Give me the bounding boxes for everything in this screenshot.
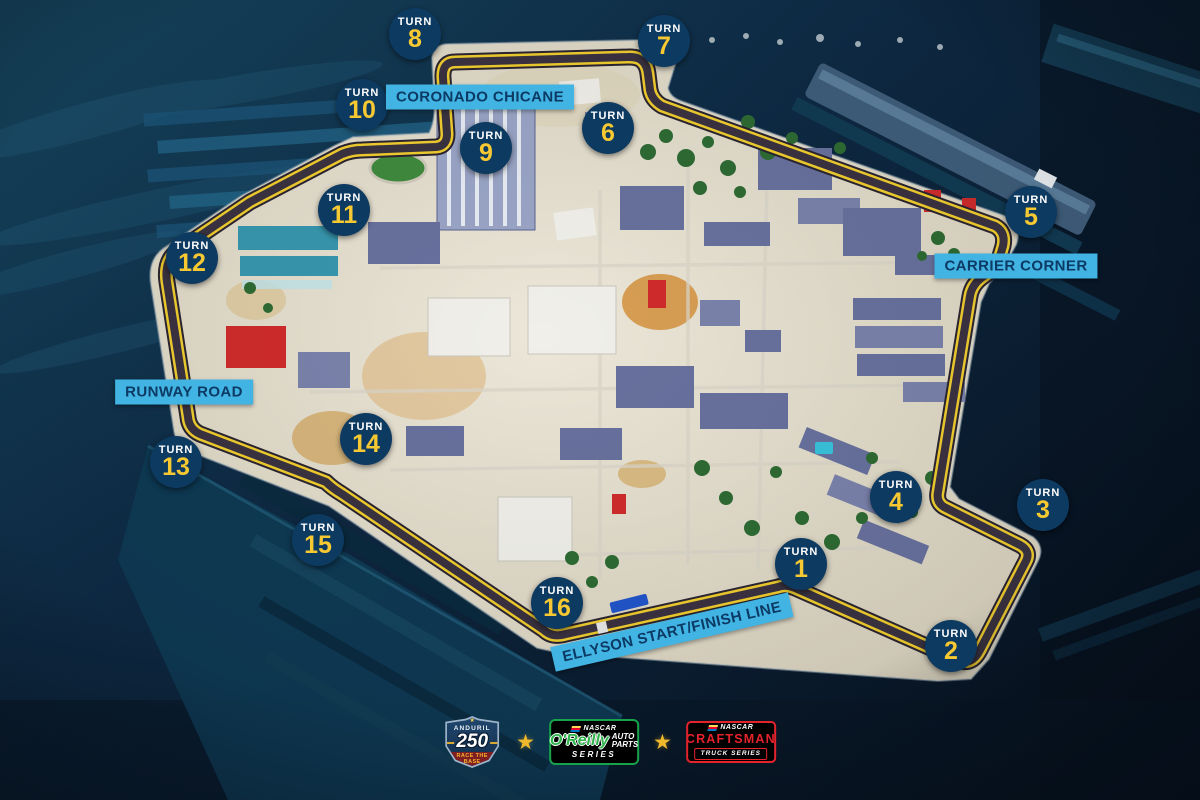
- event-logo-number: 250: [456, 732, 488, 751]
- turn-number: 4: [889, 491, 903, 515]
- turn-number: 5: [1024, 206, 1038, 230]
- turn-badge-12: TURN12: [166, 232, 218, 284]
- event-logo-shield: ★ ANDURIL 250 RACE THE BASE: [442, 716, 502, 768]
- series-label: SERIES: [572, 750, 616, 759]
- turn-badge-5: TURN5: [1005, 186, 1057, 238]
- race-track-map-poster: TURN1TURN2TURN3TURN4TURN5TURN6TURN7TURN8…: [0, 0, 1200, 800]
- turn-number: 3: [1036, 499, 1050, 523]
- star-separator-icon: ★: [516, 732, 535, 753]
- anduril-250-event-logo: ★ ANDURIL 250 RACE THE BASE: [442, 716, 502, 768]
- turn-badge-14: TURN14: [340, 413, 392, 465]
- corner-label-coronado-chicane: CORONADO CHICANE: [386, 85, 574, 110]
- nascar-oreilly-series-logo: NASCAR O'Reilly AUTO PARTS SERIES: [549, 719, 639, 765]
- turn-badge-1: TURN1: [775, 538, 827, 590]
- oreilly-wordmark: O'Reilly: [550, 733, 609, 749]
- corner-label-carrier-corner: CARRIER CORNER: [934, 254, 1097, 279]
- nascar-org-label: NASCAR: [584, 725, 617, 732]
- turn-number: 16: [543, 597, 571, 621]
- turn-number: 12: [178, 252, 206, 276]
- turn-number: 11: [331, 204, 357, 228]
- turn-badge-3: TURN3: [1017, 479, 1069, 531]
- turn-number: 9: [479, 142, 493, 166]
- turn-badge-15: TURN15: [292, 514, 344, 566]
- turn-badge-8: TURN8: [389, 8, 441, 60]
- craftsman-wordmark: CRAFTSMAN: [686, 733, 776, 746]
- turn-number: 14: [352, 433, 380, 457]
- turn-number: 7: [657, 35, 671, 59]
- corner-label-runway-road: RUNWAY ROAD: [115, 380, 253, 405]
- turn-badge-10: TURN10: [336, 79, 388, 131]
- parts-label: PARTS: [612, 741, 638, 749]
- turn-number: 15: [304, 534, 332, 558]
- event-logo-tagline: RACE THE BASE: [444, 752, 500, 766]
- turn-badge-16: TURN16: [531, 577, 583, 629]
- turn-badge-13: TURN13: [150, 436, 202, 488]
- footer-logos: ★ ANDURIL 250 RACE THE BASE ★ NASCAR O'R…: [442, 716, 776, 768]
- star-separator-icon: ★: [653, 732, 672, 753]
- turn-number: 2: [944, 640, 958, 664]
- turn-number: 10: [348, 99, 376, 123]
- turn-badge-7: TURN7: [638, 15, 690, 67]
- turn-number: 8: [408, 28, 422, 52]
- star-icon: ★: [469, 718, 474, 724]
- nascar-wordmark: NASCAR: [708, 724, 753, 731]
- turn-number: 1: [794, 558, 808, 582]
- nascar-craftsman-series-logo: NASCAR CRAFTSMAN TRUCK SERIES: [686, 721, 776, 763]
- turn-badge-2: TURN2: [925, 620, 977, 672]
- nascar-org-label: NASCAR: [720, 724, 753, 731]
- nascar-bars-icon: [707, 725, 718, 731]
- turn-badge-4: TURN4: [870, 471, 922, 523]
- nascar-bars-icon: [571, 726, 582, 732]
- turn-badge-11: TURN11: [318, 184, 370, 236]
- turn-number: 13: [162, 456, 190, 480]
- nascar-wordmark: NASCAR: [572, 725, 617, 732]
- turn-badge-6: TURN6: [582, 102, 634, 154]
- turn-badge-9: TURN9: [460, 122, 512, 174]
- truck-series-label: TRUCK SERIES: [695, 748, 767, 760]
- turn-number: 6: [601, 122, 615, 146]
